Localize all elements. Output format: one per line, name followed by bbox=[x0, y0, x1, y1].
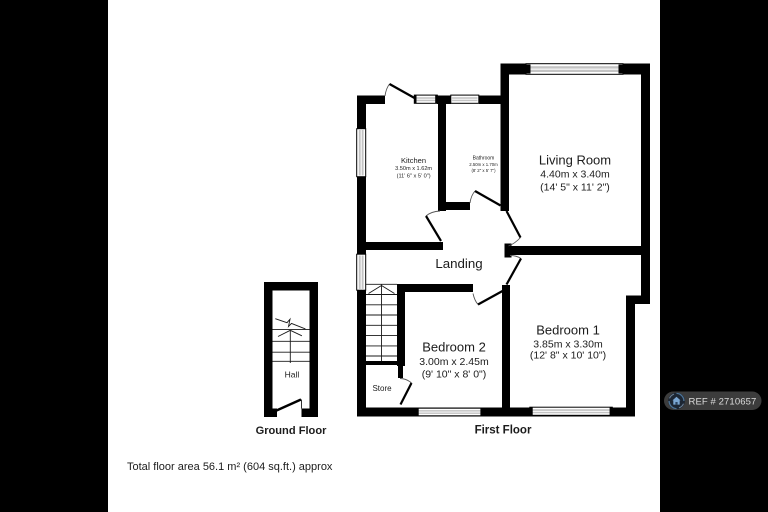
svg-text:Store: Store bbox=[372, 384, 392, 393]
svg-text:2.50m x 1.70m: 2.50m x 1.70m bbox=[469, 162, 498, 167]
svg-text:3.85m x 3.30m: 3.85m x 3.30m bbox=[533, 338, 603, 350]
svg-text:Kitchen: Kitchen bbox=[401, 156, 426, 165]
svg-text:(11' 6" x 5' 0"): (11' 6" x 5' 0") bbox=[397, 173, 431, 179]
svg-text:Bedroom 1: Bedroom 1 bbox=[536, 323, 600, 338]
svg-text:Living Room: Living Room bbox=[539, 153, 611, 168]
svg-text:Hall: Hall bbox=[285, 369, 300, 379]
svg-text:(8' 2" x 5' 7"): (8' 2" x 5' 7") bbox=[471, 168, 496, 173]
svg-text:REF # 2710657: REF # 2710657 bbox=[689, 397, 757, 408]
svg-text:Bathroom: Bathroom bbox=[473, 155, 495, 161]
svg-text:3.50m x 1.62m: 3.50m x 1.62m bbox=[395, 166, 432, 172]
svg-text:4.40m x 3.40m: 4.40m x 3.40m bbox=[540, 169, 610, 181]
svg-text:(9' 10" x 8' 0"): (9' 10" x 8' 0") bbox=[422, 368, 487, 380]
svg-text:First Floor: First Floor bbox=[475, 425, 532, 437]
svg-text:3.00m x 2.45m: 3.00m x 2.45m bbox=[419, 356, 489, 368]
svg-text:Ground Floor: Ground Floor bbox=[256, 425, 328, 437]
svg-text:(12' 8" x 10' 10"): (12' 8" x 10' 10") bbox=[530, 350, 606, 362]
svg-text:Total floor area 56.1 m² (604: Total floor area 56.1 m² (604 sq.ft.) ap… bbox=[127, 461, 333, 473]
svg-text:Bedroom 2: Bedroom 2 bbox=[422, 340, 486, 355]
svg-text:Landing: Landing bbox=[435, 256, 482, 271]
svg-text:(14' 5" x 11' 2"): (14' 5" x 11' 2") bbox=[540, 181, 610, 193]
